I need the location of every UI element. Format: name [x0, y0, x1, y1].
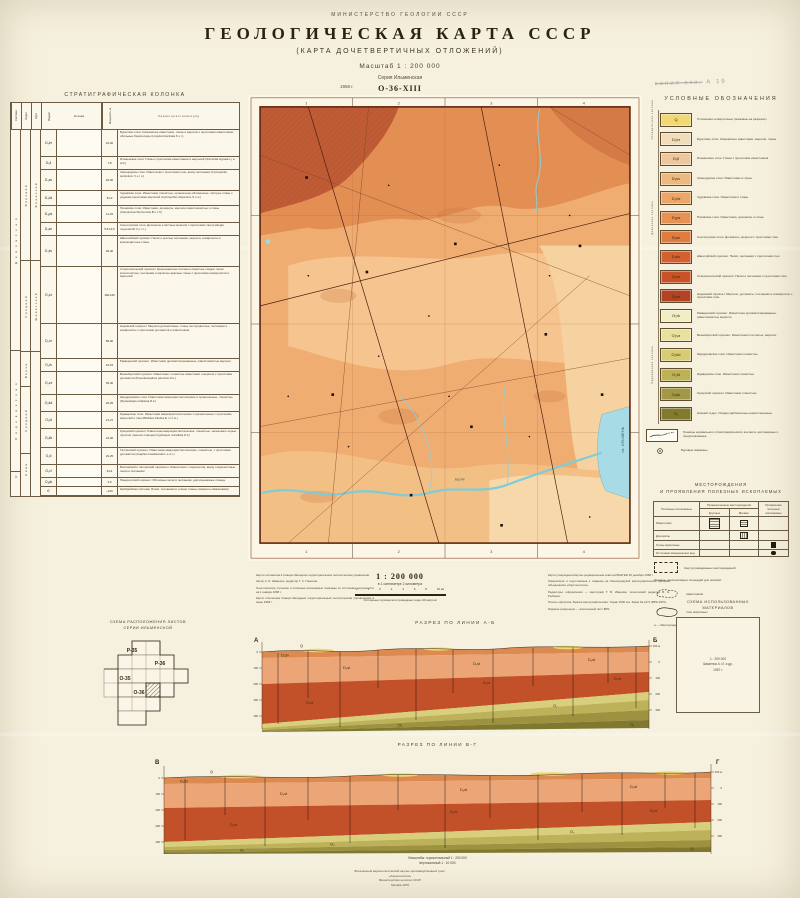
strat-row-description: Таллинский горизонт. Известняки микрокри… — [118, 448, 239, 464]
legend-color-chip: D₂st — [660, 270, 692, 284]
svg-text:O₁: O₁ — [240, 849, 245, 853]
legend-item: D₃čd Чудовские слои. Известняки и глины — [660, 188, 796, 208]
strat-row-index: D₃ps — [41, 206, 57, 222]
minerals-col-prov: Проявления полезных ископаемых — [759, 501, 789, 516]
section-ab-title: РАЗРЕЗ ПО ЛИНИИ А-Б — [248, 620, 663, 625]
legend-item-code: O₁ — [674, 411, 678, 416]
strat-row-description: Везенбергский горизонт. Известняки, глин… — [118, 372, 239, 394]
legend-item-desc: Псковские слои. Известняки, доломиты и г… — [697, 216, 764, 220]
svg-text:100 м: 100 м — [653, 644, 660, 648]
credits-line: Карта утверждена Научно-редакционным сов… — [548, 574, 670, 578]
boundary-symbol — [646, 429, 678, 442]
legend-color-chip: O₁ — [660, 407, 692, 421]
minerals-col-name: Полезные ископаемые — [654, 501, 700, 516]
strat-row: O₂tl 20-25 Таллинский горизонт. Известня… — [41, 448, 239, 465]
strat-row-thickness: 4-6 — [102, 478, 118, 486]
legend-item-desc: Шундоровские слои. Известняки глинистые — [697, 353, 758, 357]
strat-row-thickness: 11-23 — [102, 206, 118, 222]
svg-text:O₂: O₂ — [330, 843, 335, 847]
strat-row-index: D₃il — [41, 157, 57, 169]
strat-row-index: Є — [41, 487, 57, 495]
minerals-row: Глины кирпичные — [654, 541, 789, 550]
page-title: ГЕОЛОГИЧЕСКАЯ КАРТА СССР — [0, 24, 800, 44]
edition-year: 1958 г. — [340, 84, 354, 89]
svg-text:200: 200 — [253, 682, 258, 686]
credits-line: Карта отпечатана Северо-Западным террито… — [256, 597, 374, 605]
legend-item-desc: Отложения четвертичные (показаны на разр… — [697, 118, 766, 122]
stamp-number: А 19 — [706, 79, 727, 86]
legend-item-desc: Кукерский горизонт. Известняки глинистые — [697, 392, 757, 396]
strat-row-lithology — [57, 448, 102, 464]
strat-row-thickness: 20-25 — [102, 395, 118, 411]
legend-item-code: D₃šv — [672, 254, 681, 259]
legend-color-chip: O₂rk — [660, 309, 692, 323]
strat-row-index: D₃čd — [41, 191, 57, 205]
strat-row-thickness: 5,5-10,5 — [102, 223, 118, 235]
section-vg-svg: В Г Q D₃šv D₂stD₂s — [150, 750, 725, 854]
strat-row-index: D₂nr — [41, 324, 57, 358]
mineral-name: Глины кирпичные — [654, 541, 700, 550]
section-vg-left-letter: В — [155, 760, 160, 766]
svg-text:300: 300 — [717, 834, 722, 838]
strat-table: Система Отдел Ярус Индекс Колонка Мощнос… — [10, 102, 240, 497]
strat-row-thickness: 35-40 — [102, 372, 118, 394]
legend-item-code: O₂rk — [672, 313, 680, 318]
strat-row: Є ~120 Кембрийская система. Пески, песча… — [41, 487, 239, 496]
strat-row-description: Кукерский горизонт. Известняки микрокрис… — [118, 429, 239, 447]
legend-color-chip: D₃sn — [660, 230, 692, 244]
legend-system-strip: Четвертичная система Девонская система О… — [646, 110, 658, 424]
strat-row-index: O₂kk — [41, 429, 57, 447]
col-otdel: Отдел — [21, 103, 31, 129]
yarus-strip: Франский Живетский — [31, 130, 41, 496]
otdel-lower-o: Нижн. — [24, 460, 28, 476]
strat-row-lithology — [57, 478, 102, 486]
svg-text:300: 300 — [155, 824, 160, 828]
col-yarus: Ярус — [31, 103, 41, 129]
strat-row-description: Снетогорские слои. Доломиты и пёстрые ме… — [118, 223, 239, 235]
legend-color-chip: O₂vz — [660, 328, 692, 342]
section-vg: В Г Q D₃šv D₂stD₂s — [150, 750, 725, 859]
strat-row-index: O₂id — [41, 412, 57, 428]
col-column: Колонка — [57, 103, 102, 129]
legend-item-desc: Наровский горизонт. Мергели, доломиты, п… — [697, 293, 796, 300]
strat-row-description: Псковские слои. Известняки, доломиты, ме… — [118, 206, 239, 222]
strat-row-thickness: ~120 — [102, 487, 118, 495]
contour-note-text: Контур разведанных месторождений — [684, 566, 736, 570]
legend-item-code: D₃sn — [672, 235, 681, 240]
legend-item-code: Q — [674, 117, 677, 122]
imprint-line: Москва 1970 — [0, 883, 800, 888]
strat-row: O₁pk 4-6 Пакерортский горизонт. Оболовые… — [41, 478, 239, 487]
strat-row-thickness: 100-140 — [102, 267, 118, 323]
materials-box: 1 : 200 000 Шмаенок А. И. и др. 1967 г. — [676, 617, 760, 713]
strat-row-description: Волховский и латорпский горизонты. Извес… — [118, 465, 239, 477]
legend-item: D₃sn Снетогорские слои. Доломиты, мергел… — [660, 228, 796, 248]
ministry-line: МИНИСТЕРСТВО ГЕОЛОГИИ СССР — [0, 12, 800, 18]
strat-row-description: Шундоровские слои. Известняки микрокрист… — [118, 395, 239, 411]
strat-row-lithology — [57, 429, 102, 447]
system-devonian: Д е в о н с к а я — [14, 217, 18, 264]
section-ab-left-letter: А — [254, 638, 259, 644]
section-scales-note: Масштабы: горизонтальный 1 : 200 000 вер… — [150, 856, 725, 866]
svg-text:D₃šv: D₃šv — [281, 654, 289, 658]
strat-row-description: Швентойский горизонт. Пески и рыхлые пес… — [118, 236, 239, 266]
strat-row-description: Раквереский горизонт. Известняки доломит… — [118, 359, 239, 371]
legend-item-desc: Швентойский горизонт. Пески, песчаники с… — [697, 255, 779, 259]
col-thickness: Мощность, м — [102, 103, 118, 129]
legend-item: O₂id Идаверские слои. Известняки глинист… — [660, 365, 796, 385]
strat-row-lithology — [57, 170, 102, 190]
minerals-col-small: Мелкие — [729, 509, 758, 517]
strat-row: O₂kk 24-30 Кукерский горизонт. Известняк… — [41, 429, 239, 448]
strat-row-description: Бурегские слои. Комковатые известняки, г… — [118, 130, 239, 156]
strat-table-body: Д е в о н с к а я О р д о в и к с к а я … — [11, 130, 239, 496]
yarus-givetian: Живетский — [34, 292, 38, 321]
strat-row-index: O₂vz — [41, 372, 57, 394]
strat-row-index: D₃sn — [41, 223, 57, 235]
strat-row-description: Пакерортский горизонт. Оболовые пески и … — [118, 478, 239, 486]
legend-item-code: D₂st — [672, 274, 680, 279]
legend-item: O₁ Нижний отдел. Осадки карбонатные нера… — [660, 404, 796, 424]
borehole-desc: Буровые скважины — [681, 449, 708, 453]
strat-row-lithology — [57, 236, 102, 266]
minerals-title-line2: И ПРОЯВЛЕНИЯ ПОЛЕЗНЫХ ИСКОПАЕМЫХ — [646, 488, 796, 495]
system-strip: Д е в о н с к а я О р д о в и к с к а я … — [11, 130, 21, 496]
col-description: Х а р а к т е р и с т и к а п о р о д — [118, 103, 239, 129]
strat-row-lithology — [57, 465, 102, 477]
strat-row-lithology — [57, 412, 102, 428]
strat-row: D₃sv 20-30 Свинордские слои. Известняки … — [41, 170, 239, 191]
svg-text:100: 100 — [717, 802, 722, 806]
strat-row-index: O₁pk — [41, 478, 57, 486]
strat-row-index: O₂rk — [41, 359, 57, 371]
svg-text:300: 300 — [655, 708, 660, 712]
strat-row: D₃čd 8-10 Чудовские слои. Известняки гли… — [41, 191, 239, 206]
legend-item: D₂st Старооскольский горизонт. Пески и п… — [660, 267, 796, 287]
strat-row-description: Чудовские слои. Известняки глинистые, ор… — [118, 191, 239, 205]
strat-row-lithology — [57, 157, 102, 169]
legend-item-code: O₂šd — [672, 352, 681, 357]
credits-line: Оформлена и подготовлена к изданию на Ле… — [548, 580, 670, 588]
svg-text:D₂st: D₂st — [280, 792, 288, 796]
svg-text:100: 100 — [655, 676, 660, 680]
svg-text:O₁: O₁ — [690, 847, 695, 851]
strat-row-lithology — [57, 359, 102, 371]
minerals-col-large: Крупные — [700, 509, 729, 517]
legend-item-desc: Старооскольский горизонт. Пески и песчан… — [697, 275, 787, 279]
legend-item-code: O₂vz — [672, 333, 681, 338]
bound-limestone-text: известняков — [686, 592, 703, 596]
legend-item: D₃šv Швентойский горизонт. Пески, песчан… — [660, 247, 796, 267]
legend-item-code: D₃br — [672, 137, 680, 142]
svg-text:D₂st: D₂st — [343, 666, 351, 670]
strat-row-description: Ильменские слои. Глины с прослоями извес… — [118, 157, 239, 169]
legend-item-desc: Везенбергский горизонт. Известняки плитч… — [697, 334, 776, 338]
strat-row-thickness: 10-15 — [102, 359, 118, 371]
legend-item: D₃br Бурегские слои. Комковатые известня… — [660, 130, 796, 150]
legend-item-desc: Чудовские слои. Известняки и глины — [697, 196, 748, 200]
strat-row-index: O₁vl — [41, 465, 57, 477]
deposit-small-symbol — [740, 532, 748, 540]
mineral-name: Известняки — [654, 516, 700, 530]
svg-text:Q: Q — [300, 644, 303, 648]
strat-row: O₁vl 9-14 Волховский и латорпский горизо… — [41, 465, 239, 478]
legend-borehole-item: Буровые скважины — [646, 447, 796, 455]
svg-text:400: 400 — [253, 714, 258, 718]
sheets-scheme-title2: СЕРИИ ИЛЬМЕНСКОЙ — [92, 626, 204, 632]
svg-text:D₂st: D₂st — [588, 658, 596, 662]
strat-row-description: Старооскольский горизонт. Красноцветные … — [118, 267, 239, 323]
strat-rows: D₃br 10-30 Бурегские слои. Комковатые из… — [41, 130, 239, 496]
strat-row-index: D₃sv — [41, 170, 57, 190]
svg-text:О-36: О-36 — [133, 690, 144, 696]
strat-row: D₃br 10-30 Бурегские слои. Комковатые из… — [41, 130, 239, 157]
svg-text:O₂: O₂ — [570, 830, 575, 834]
legend-items: Q Отложения четвертичные (показаны на ра… — [660, 110, 796, 424]
legend-item-desc: Раквереский горизонт. Известняки доломит… — [697, 312, 796, 319]
map-svg: оз. ИЛЬМЕНЬ Мста 1 2 3 4 1 2 3 4 — [248, 94, 642, 562]
credits-line: Редакторы: оформления — картограф Т. В. … — [548, 591, 670, 599]
strat-row-lithology — [57, 206, 102, 222]
otdel-upper-o: Верхн. — [24, 360, 28, 378]
legend-item-code: D₃čd — [672, 196, 681, 201]
section-vg-title: РАЗРЕЗ ПО ЛИНИИ В-Г — [150, 742, 725, 747]
svg-text:D₂nr: D₂nr — [306, 701, 314, 705]
strat-row-description: Идаверские слои. Известняки микрокристал… — [118, 412, 239, 428]
svg-text:D₂st: D₂st — [473, 662, 481, 666]
strat-row-lithology — [57, 223, 102, 235]
credits-line: Геологическое строение и полезные ископа… — [256, 587, 374, 595]
yarus-frasnian: Франский — [34, 182, 38, 207]
svg-text:D₃šv: D₃šv — [180, 780, 188, 784]
legend-item: D₃sv Свинордские слои. Известняки и глин… — [660, 169, 796, 189]
strat-row-lithology — [57, 267, 102, 323]
svg-text:300: 300 — [253, 698, 258, 702]
svg-text:200: 200 — [717, 818, 722, 822]
strat-row: D₃šv 30-40 Швентойский горизонт. Пески и… — [41, 236, 239, 267]
borehole-symbol — [646, 447, 676, 455]
legend-item-code: D₃ps — [672, 215, 681, 220]
strat-row-thickness: 21-27 — [102, 412, 118, 428]
strat-row-thickness: 7-8 — [102, 157, 118, 169]
strat-row-index: D₃šv — [41, 236, 57, 266]
legend-item-code: D₃sv — [672, 176, 681, 181]
svg-text:D₂st: D₂st — [630, 785, 638, 789]
strat-row: D₃ps 11-23 Псковские слои. Известняки, д… — [41, 206, 239, 223]
legend-group-ordovik: Ордовикская система — [651, 346, 654, 384]
strat-column-title: СТРАТИГРАФИЧЕСКАЯ КОЛОНКА — [10, 92, 240, 98]
minerals-title: МЕСТОРОЖДЕНИЯ И ПРОЯВЛЕНИЯ ПОЛЕЗНЫХ ИСКО… — [646, 481, 796, 495]
legend-color-chip: D₃br — [660, 132, 692, 146]
strat-row-description: Кембрийская система. Пески, песчаники и … — [118, 487, 239, 495]
geological-map-sheet: МИНИСТЕРСТВО ГЕОЛОГИИ СССР ГЕОЛОГИЧЕСКАЯ… — [0, 0, 800, 898]
otdel-middle-o: Средний — [24, 409, 28, 432]
strat-row: D₂nr 80-90 Наровский горизонт. Мергели д… — [41, 324, 239, 359]
section-vg-layers — [164, 771, 711, 854]
svg-text:100: 100 — [155, 792, 160, 796]
legend-item-desc: Свинордские слои. Известняки и глины — [697, 177, 752, 181]
legend-item: O₂vz Везенбергский горизонт. Известняки … — [660, 326, 796, 346]
strat-row-thickness: 24-30 — [102, 429, 118, 447]
col-system: Система — [11, 103, 21, 129]
svg-text:D₂nr: D₂nr — [230, 823, 238, 827]
legend-item-code: O₂kk — [672, 392, 681, 397]
legend-color-chip: D₃šv — [660, 250, 692, 264]
bounds-head: Границы перспективных площадей для поиск… — [654, 578, 796, 582]
svg-text:O₂: O₂ — [398, 724, 403, 728]
strat-row-description: Наровский горизонт. Мергели доломитовые,… — [118, 324, 239, 358]
pond — [266, 239, 271, 244]
strat-row-index: D₃br — [41, 130, 57, 156]
svg-text:D₂nr: D₂nr — [650, 809, 658, 813]
strat-row-lithology — [57, 191, 102, 205]
minerals-row: Источники минеральных вод — [654, 549, 789, 557]
credits-line: Автор А. И. Шмаенок, редактор Г. С. Гане… — [256, 580, 374, 584]
svg-text:0: 0 — [720, 786, 722, 790]
deposit-prov-symbol — [771, 551, 776, 556]
system-ordovician: О р д о в и к с к а я — [14, 382, 18, 440]
legend-item-desc: Ильменские слои. Глины с прослоями извес… — [697, 157, 768, 161]
section-vg-right-letter: Г — [716, 760, 720, 766]
legend-group-devon: Девонская система — [651, 201, 654, 235]
stratigraphic-column: СТРАТИГРАФИЧЕСКАЯ КОЛОНКА Система Отдел … — [10, 92, 240, 497]
page-subtitle: (КАРТА ДОЧЕТВЕРТИЧНЫХ ОТЛОЖЕНИЙ) — [0, 48, 800, 55]
legend-item-code: D₃il — [673, 156, 679, 161]
svg-text:Р-36: Р-36 — [155, 661, 166, 667]
strat-row: O₂šd 20-25 Шундоровские слои. Известняки… — [41, 395, 239, 412]
otdel-upper: Верхний — [24, 184, 28, 206]
svg-text:0: 0 — [256, 650, 258, 654]
otdel-middle: Средний — [24, 295, 28, 318]
section-ab: А Б Q D₃šv D₂stD₂s — [248, 628, 663, 737]
legend: УСЛОВНЫЕ ОБОЗНАЧЕНИЯ Четвертичная систем… — [646, 96, 796, 627]
legend-item: O₂kk Кукерский горизонт. Известняки глин… — [660, 384, 796, 404]
strat-row-lithology — [57, 487, 102, 495]
legend-title: УСЛОВНЫЕ ОБОЗНАЧЕНИЯ — [646, 96, 796, 102]
strat-row-thickness: 10-30 — [102, 130, 118, 156]
svg-text:200: 200 — [655, 692, 660, 696]
sheets-scheme-svg: Р-35 Р-36 О-35 О-36 — [92, 635, 204, 735]
legend-item-desc: Снетогорские слои. Доломиты, мергели с п… — [697, 236, 778, 240]
minerals-rows: Известняки Доломиты Глины кирпичные — [654, 516, 789, 557]
svg-text:D₂nr: D₂nr — [614, 677, 622, 681]
imprint: Всесоюзный аэрогеологический научно-прои… — [0, 869, 800, 887]
strat-row-lithology — [57, 324, 102, 358]
legend-item-desc: Нижний отдел. Осадки карбонатные нерасчл… — [697, 412, 772, 416]
strat-table-header: Система Отдел Ярус Индекс Колонка Мощнос… — [11, 103, 239, 130]
minerals-col-group: Промышленные месторождения — [700, 501, 759, 509]
legend-color-chip: D₃čd — [660, 191, 692, 205]
strat-row-lithology — [57, 395, 102, 411]
strat-row-lithology — [57, 130, 102, 156]
sheets-scheme: СХЕМА РАСПОЛОЖЕНИЯ ЛИСТОВ СЕРИИ ИЛЬМЕНСК… — [92, 620, 204, 735]
strat-row-description: Свинордские слои. Известняки с прослоями… — [118, 170, 239, 190]
legend-color-chip: D₃ps — [660, 211, 692, 225]
strat-row-thickness: 8-10 — [102, 191, 118, 205]
svg-text:0: 0 — [658, 660, 660, 664]
svg-text:200: 200 — [155, 808, 160, 812]
legend-item-desc: Идаверские слои. Известняки глинистые — [697, 373, 754, 377]
strat-row-thickness: 20-25 — [102, 448, 118, 464]
deposit-prov-symbol — [771, 542, 777, 548]
svg-text:D₂nr: D₂nr — [450, 810, 458, 814]
strat-row: O₂id 21-27 Идаверские слои. Известняки м… — [41, 412, 239, 429]
deposit-small-symbol — [740, 520, 748, 528]
strat-row-thickness: 9-14 — [102, 465, 118, 477]
contour-symbol — [654, 562, 678, 573]
minerals-row: Известняки — [654, 516, 789, 530]
system-cambrian: Є — [14, 474, 18, 478]
svg-text:0: 0 — [158, 776, 160, 780]
section-scales-line2: вертикальный 1 : 10 000 — [150, 861, 725, 866]
strat-row: D₂st 100-140 Старооскольский горизонт. К… — [41, 267, 239, 324]
minerals-title-line1: МЕСТОРОЖДЕНИЯ — [646, 481, 796, 488]
strat-row-thickness: 20-30 — [102, 170, 118, 190]
legend-item-code: D₂nr — [672, 294, 680, 299]
strat-row: D₃sn 5,5-10,5 Снетогорские слои. Доломит… — [41, 223, 239, 236]
legend-color-chip: O₂šd — [660, 348, 692, 362]
mineral-name: Источники минеральных вод — [654, 549, 700, 557]
boundary-desc: Границы нормального стратиграфического к… — [683, 431, 796, 438]
legend-color-chip: O₂id — [660, 368, 692, 382]
main-map: оз. ИЛЬМЕНЬ Мста 1 2 3 4 1 2 3 4 — [248, 94, 642, 562]
map-body: оз. ИЛЬМЕНЬ Мста — [248, 107, 630, 543]
credits-left: Карта составлена в Северо-Западном терри… — [256, 574, 374, 608]
legend-item: Q Отложения четвертичные (показаны на ра… — [660, 110, 796, 130]
legend-item-desc: Бурегские слои. Комковатые известняки, м… — [697, 138, 776, 142]
strat-row: D₃il 7-8 Ильменские слои. Глины с просло… — [41, 157, 239, 170]
legend-item: O₂rk Раквереский горизонт. Известняки до… — [660, 306, 796, 326]
svg-text:O₁: O₁ — [630, 723, 635, 727]
svg-text:О-35: О-35 — [119, 676, 130, 682]
strat-row-thickness: 30-40 — [102, 236, 118, 266]
strat-row-lithology — [57, 372, 102, 394]
section-ab-svg: А Б Q D₃šv D₂stD₂s — [248, 628, 663, 732]
map-scale-label: Масштаб 1 : 200 000 — [0, 63, 800, 70]
minerals-table: Полезные ископаемые Промышленные месторо… — [653, 501, 789, 558]
materials-scheme-title2: МАТЕРИАЛОВ — [652, 606, 784, 612]
svg-text:D₂nr: D₂nr — [483, 681, 491, 685]
mineral-name: Доломиты — [654, 530, 700, 541]
contour-note: Контур разведанных месторождений — [646, 562, 796, 573]
svg-text:100: 100 — [253, 666, 258, 670]
deposit-large-symbol — [709, 518, 720, 529]
legend-color-chip: D₃il — [660, 152, 692, 166]
svg-text:Q: Q — [210, 770, 213, 774]
river-label: Мста — [455, 477, 465, 482]
strat-row-index: O₂tl — [41, 448, 57, 464]
lake-label: оз. ИЛЬМЕНЬ — [620, 426, 625, 452]
strat-row: O₂vz 35-40 Везенбергский горизонт. Извес… — [41, 372, 239, 395]
otdel-strip: Верхний Средний Верхн. Средний Нижн. — [21, 130, 31, 496]
credits-line: Карта составлена в Северо-Западном терри… — [256, 574, 374, 578]
legend-item: O₂šd Шундоровские слои. Известняки глини… — [660, 345, 796, 365]
legend-color-chip: Q — [660, 113, 692, 127]
svg-text:100 м: 100 м — [715, 770, 722, 774]
strat-row-index: D₂st — [41, 267, 57, 323]
materials-scheme: СХЕМА ИСПОЛЬЗОВАННЫХ МАТЕРИАЛОВ 1 : 200 … — [652, 600, 784, 713]
legend-item: D₃ps Псковские слои. Известняки, доломит… — [660, 208, 796, 228]
legend-items-wrap: Четвертичная система Девонская система О… — [646, 110, 796, 424]
legend-item: D₃il Ильменские слои. Глины с прослоями … — [660, 149, 796, 169]
legend-item-code: O₂id — [672, 372, 680, 377]
svg-text:O₂: O₂ — [553, 704, 558, 708]
strat-row-thickness: 80-90 — [102, 324, 118, 358]
current-sheet-cell — [146, 683, 160, 697]
legend-item: D₂nr Наровский горизонт. Мергели, доломи… — [660, 286, 796, 306]
minerals-row: Доломиты — [654, 530, 789, 541]
